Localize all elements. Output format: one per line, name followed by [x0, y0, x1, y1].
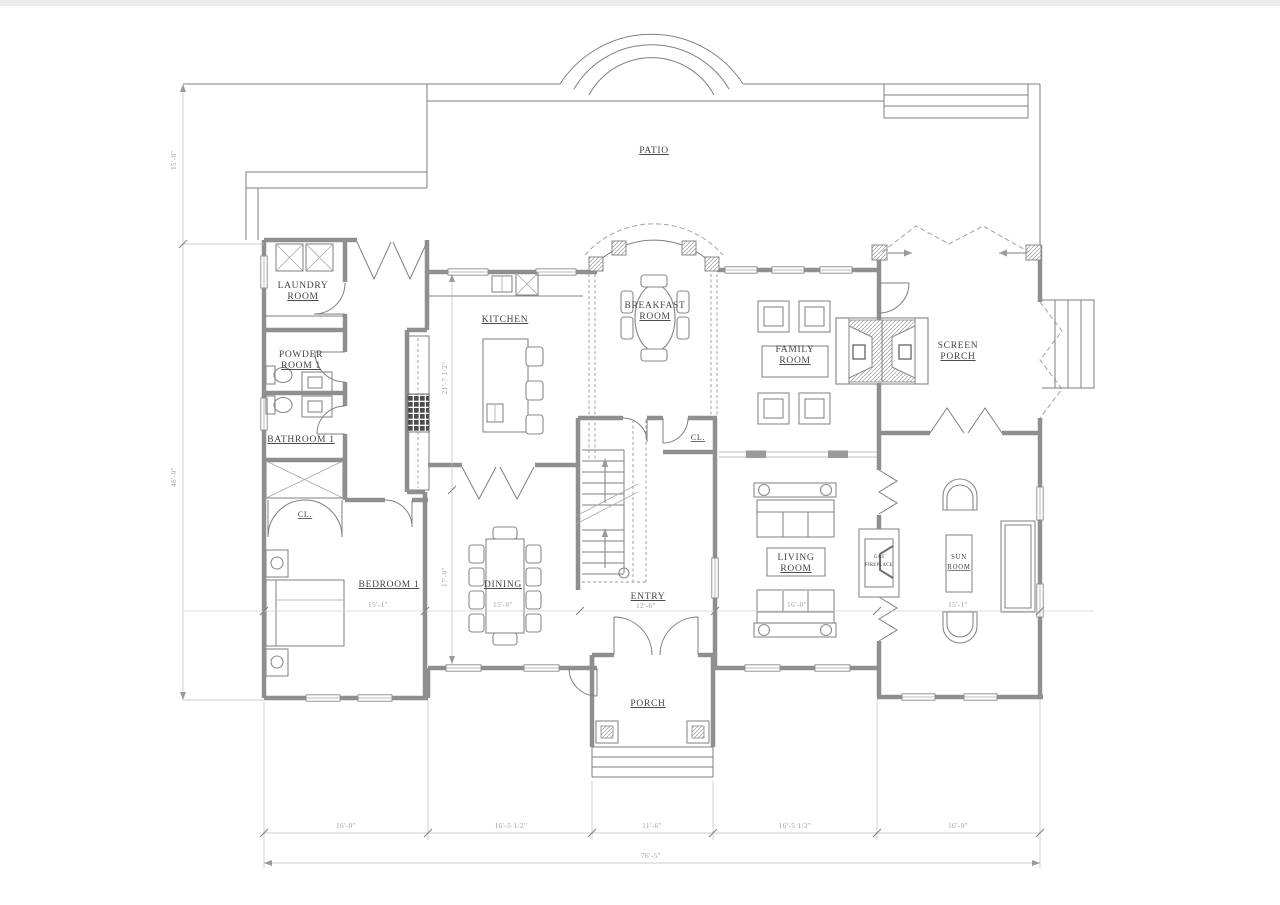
label-porch: PORCH — [630, 699, 665, 709]
floor-plan-drawing: PATIO LAUNDRY ROOM KITCHEN BREAKFAST ROO… — [0, 0, 1280, 905]
label-breakfast-2: ROOM — [639, 312, 670, 322]
label-bathroom: BATHROOM 1 — [267, 435, 334, 445]
label-gas-fireplace-2: FIREPLACE — [865, 563, 893, 568]
bay-column — [705, 257, 719, 271]
dim-living-width: 16'-0" — [787, 600, 807, 609]
label-sunroom-1: SUN — [951, 554, 967, 561]
beam-block — [746, 451, 766, 459]
label-closet-entry: CL. — [691, 433, 705, 442]
stool — [526, 415, 543, 434]
refrigerator — [408, 394, 429, 432]
scan-edge — [0, 0, 1280, 6]
label-sunroom-2: ROOM — [947, 564, 970, 571]
chair — [621, 317, 633, 339]
label-family-2: ROOM — [779, 356, 810, 366]
label-laundry-1: LAUNDRY — [278, 281, 329, 291]
label-dining: DINING — [484, 580, 522, 590]
chair — [526, 568, 541, 586]
bay-column — [589, 257, 603, 271]
dim-dining-width: 15'-0" — [493, 600, 513, 609]
chair — [469, 545, 484, 563]
chair — [493, 527, 517, 539]
bay-column — [682, 241, 696, 255]
label-breakfast-1: BREAKFAST — [624, 301, 685, 311]
stool — [526, 381, 543, 400]
chair — [493, 633, 517, 645]
paper-background — [0, 0, 1280, 905]
label-gas-fireplace-1: GAS — [874, 555, 884, 560]
porch-post — [1026, 245, 1041, 260]
dim-bottom-1: 16'-0" — [336, 821, 356, 830]
label-powder-2: ROOM 1 — [281, 361, 321, 371]
chair — [677, 317, 689, 339]
label-screenporch-2: PORCH — [940, 352, 975, 362]
chair — [469, 614, 484, 632]
beam-block — [828, 451, 848, 459]
chair — [526, 614, 541, 632]
label-laundry-2: ROOM — [287, 292, 318, 302]
dim-kitchen-depth: 21'-7 1/2" — [440, 362, 449, 395]
label-kitchen: KITCHEN — [482, 315, 529, 325]
label-closet-bedroom: CL. — [298, 510, 312, 519]
dim-left-upper: 15'-0" — [169, 150, 178, 170]
dim-overall-width: 76'-5" — [641, 851, 661, 860]
label-living-2: ROOM — [780, 564, 811, 574]
chair — [526, 591, 541, 609]
chair — [469, 568, 484, 586]
fireplace-double-sided — [836, 318, 928, 384]
dim-entry-width: 12'-6" — [636, 601, 656, 610]
label-bedroom: BEDROOM 1 — [359, 580, 420, 590]
dim-bedroom-width: 15'-1" — [368, 600, 388, 609]
floor-plan-page: PATIO LAUNDRY ROOM KITCHEN BREAKFAST ROO… — [0, 0, 1280, 905]
label-powder-1: POWDER — [279, 350, 323, 360]
chair — [469, 591, 484, 609]
bay-column — [612, 241, 626, 255]
dim-sun-width: 15'-1" — [948, 600, 968, 609]
label-living-1: LIVING — [778, 553, 815, 563]
label-screenporch-1: SCREEN — [938, 341, 979, 351]
chair — [526, 545, 541, 563]
dim-bottom-5: 16'-0" — [948, 821, 968, 830]
dim-left-main: 46'-0" — [169, 467, 178, 487]
dim-bottom-4: 16'-5 1/2" — [779, 821, 812, 830]
stool — [526, 347, 543, 366]
kitchen-island — [483, 339, 528, 432]
dim-dining-depth: 17'-0" — [440, 567, 449, 587]
chair — [641, 349, 667, 361]
label-patio: PATIO — [639, 146, 669, 156]
dim-bottom-2: 16'-5 1/2" — [495, 821, 528, 830]
chair — [641, 275, 667, 287]
porch-post — [872, 245, 887, 260]
label-family-1: FAMILY — [776, 345, 815, 355]
dim-bottom-3: 11'-6" — [642, 821, 662, 830]
